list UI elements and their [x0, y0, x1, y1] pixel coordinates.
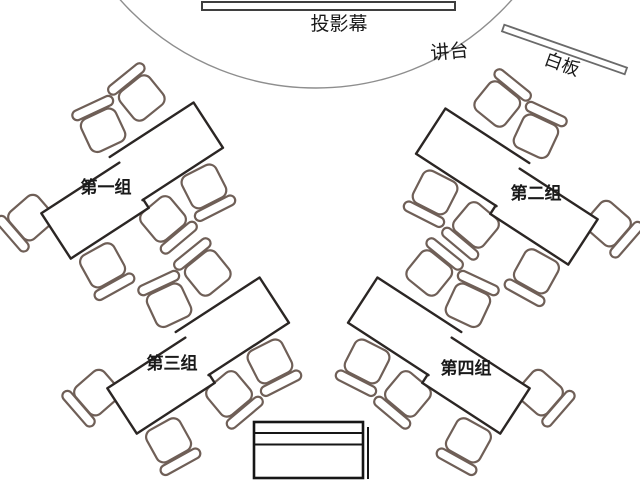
- group-4-label: 第四组: [441, 358, 492, 379]
- projection-screen-label: 投影幕: [310, 13, 367, 35]
- classroom-layout-svg: 投影幕 讲台 白板 第一组 第二组 第三组 第四组: [0, 0, 640, 481]
- classroom-layout-diagram: 投影幕 讲台 白板 第一组 第二组 第三组 第四组: [0, 0, 640, 481]
- teacher-desk-body: [254, 422, 363, 478]
- group-3-label: 第三组: [147, 353, 198, 374]
- group-1-label: 第一组: [81, 177, 132, 198]
- teacher-desk: [254, 422, 368, 479]
- projection-screen: [202, 2, 455, 10]
- group-2-label: 第二组: [511, 183, 562, 204]
- podium-label: 讲台: [430, 39, 470, 64]
